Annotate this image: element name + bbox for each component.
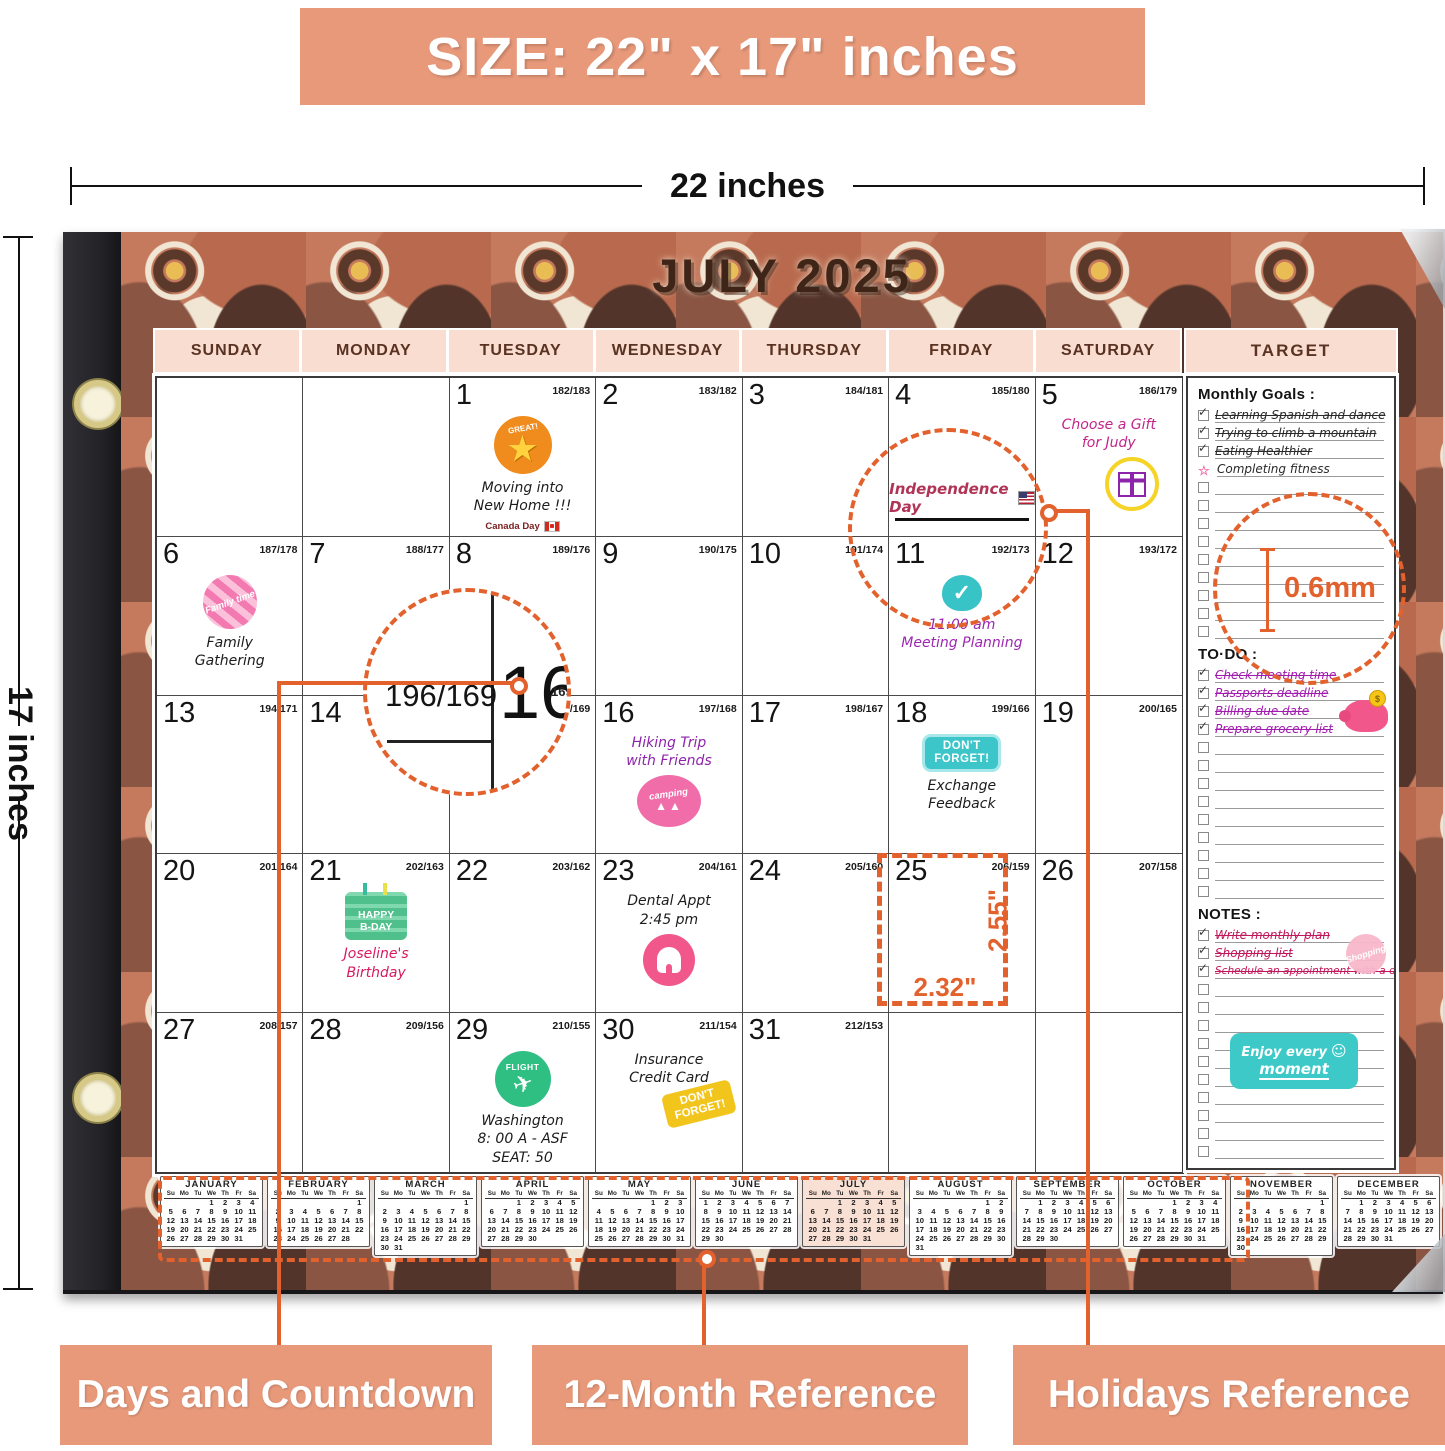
mini-day: 26 [1275, 1235, 1289, 1244]
event-line: Exchange [928, 777, 997, 795]
measure-line [853, 185, 1425, 187]
checkbox-icon [1198, 868, 1209, 879]
date-number: 16 [602, 699, 634, 728]
cell-content: DON'TFORGET!ExchangeFeedback [889, 730, 1034, 854]
birthday-cake-sticker-icon: HAPPYB-DAY [345, 892, 407, 940]
event-line: Credit Card [629, 1069, 709, 1087]
mini-day [1275, 1244, 1289, 1253]
day-header-label: TUESDAY [480, 342, 562, 360]
day-header: MONDAY [302, 330, 446, 372]
sticker-label: HAPPY [358, 909, 394, 922]
mini-day [1302, 1244, 1316, 1253]
calendar-day-cell: 28209/156 [303, 1013, 449, 1172]
great-star-sticker-icon: GREAT!★ [494, 416, 552, 474]
mini-day [1422, 1235, 1436, 1244]
connector-ring [698, 1250, 716, 1268]
mini-day: 27 [1288, 1235, 1302, 1244]
ruled-line: Trying to climb a mountain [1215, 422, 1384, 441]
day-countdown: 199/166 [992, 703, 1030, 715]
ruled-line [1215, 880, 1384, 899]
day-header: WEDNESDAY [596, 330, 740, 372]
day-countdown: 186/179 [1139, 385, 1177, 397]
date-number: 26 [1042, 857, 1074, 886]
ruled-line: Eating Healthier [1215, 440, 1384, 459]
date-number: 18 [895, 699, 927, 728]
target-header: TARGET [1186, 330, 1396, 372]
magnified-gridline [387, 740, 493, 743]
event-text: Hiking Tripwith Friends [626, 734, 712, 770]
calendar-day-cell: 29210/155FLIGHT✈Washington8: 00 A - ASFS… [450, 1013, 596, 1172]
mini-day [1261, 1244, 1275, 1253]
mini-day-header: Mo [1355, 1190, 1369, 1197]
checklist-item: Passports deadline [1198, 683, 1384, 701]
checkbox-icon [1198, 1092, 1209, 1103]
empty-checklist-row [1198, 477, 1384, 495]
cell-content [303, 1047, 448, 1172]
date-number: 2 [602, 381, 618, 410]
flight-sticker-icon: FLIGHT✈ [495, 1051, 551, 1107]
width-measurement: 22 inches [70, 168, 1425, 204]
date-number: 8 [456, 540, 472, 569]
ruled-line [1215, 790, 1384, 809]
cell-content: HAPPYB-DAYJoseline'sBirthday [303, 888, 448, 1012]
day-countdown: 197/168 [699, 703, 737, 715]
event-text: Joseline'sBirthday [344, 945, 409, 981]
cell-content [889, 1047, 1034, 1172]
checkbox-icon [1198, 886, 1209, 897]
empty-checklist-row [1198, 845, 1384, 863]
checked-checkbox-icon [1198, 688, 1209, 699]
cell-content [1036, 730, 1182, 854]
empty-checklist-row [1198, 737, 1384, 755]
countdown-magnifier-circle: 196/169 16 169 [363, 588, 571, 796]
product-image-calendar: SIZE: 22" x 17" inches 22 inches 17 inch… [0, 0, 1445, 1451]
cell-content: GREAT!★Moving intoNew Home !!! [450, 412, 595, 536]
day-countdown: 204/161 [699, 861, 737, 873]
checkbox-icon [1198, 742, 1209, 753]
measure-tick [1423, 167, 1425, 205]
month-title: JULY 2025 [121, 248, 1443, 303]
event-line: Washington [477, 1112, 567, 1130]
checkbox-icon [1198, 1146, 1209, 1157]
sticker-label: B-DAY [360, 921, 392, 934]
empty-checklist-row [1198, 827, 1384, 845]
event-line: for Judy [1062, 434, 1156, 452]
cell-content [1036, 888, 1182, 1012]
cell-content [1036, 571, 1182, 695]
date-number: 24 [749, 857, 781, 886]
cell-content [743, 1047, 888, 1172]
calendar-day-cell: 12193/172 [1036, 537, 1182, 696]
checklist-item: Trying to climb a mountain [1198, 423, 1384, 441]
checklist-item-text: Write monthly plan [1215, 929, 1330, 942]
connector-ring [510, 677, 528, 695]
event-text: Washington8: 00 A - ASFSEAT: 50 [477, 1112, 567, 1167]
paper-thickness-label: 0.6mm [1284, 572, 1376, 605]
ruled-line: Completing fitness [1217, 458, 1384, 477]
day-header-label: MONDAY [336, 342, 412, 360]
day-header-label: SATURDAY [1061, 342, 1155, 360]
checked-checkbox-icon [1198, 428, 1209, 439]
day-countdown: 183/182 [699, 385, 737, 397]
checklist-item-text: Trying to climb a mountain [1215, 427, 1376, 440]
measure-line [18, 236, 20, 726]
event-line: Birthday [344, 964, 409, 982]
mini-day-header: We [1382, 1190, 1396, 1197]
measure-line [70, 185, 642, 187]
size-banner-text: SIZE: 22" x 17" inches [426, 26, 1018, 88]
measure-line [18, 801, 20, 1291]
calendar-day-cell: 27208/157 [157, 1013, 303, 1172]
event-line: Moving into [474, 479, 572, 497]
checklist-item-text: Prepare grocery list [1215, 723, 1333, 736]
camping-sticker-icon: camping▲▲ [637, 775, 701, 827]
checkbox-icon [1198, 1056, 1209, 1067]
mini-day-header: Sa [1422, 1190, 1436, 1197]
cell-content: Family timeFamilyGathering [157, 571, 302, 695]
mini-day: 29 [1355, 1235, 1369, 1244]
cell-content [157, 412, 302, 536]
day-header: THURSDAY [742, 330, 886, 372]
tooth-icon [657, 947, 681, 973]
ruled-line [1215, 772, 1384, 791]
calendar-pad: JULY 2025 SUNDAYMONDAYTUESDAYWEDNESDAYTH… [63, 232, 1443, 1294]
calendar-day-cell: 31212/153 [743, 1013, 889, 1172]
ruled-line: Learning Spanish and dance [1215, 404, 1385, 423]
checked-checkbox-icon [1198, 446, 1209, 457]
coin-icon: $ [1369, 690, 1386, 707]
family-time-sticker-icon: Family time [200, 572, 259, 631]
notes-heading: NOTES : [1198, 906, 1384, 923]
cell-content [596, 571, 741, 695]
empty-checklist-row [1198, 1105, 1384, 1123]
date-number: 17 [749, 699, 781, 728]
callout-12-month-reference: 12-Month Reference [532, 1345, 968, 1445]
empty-checklist-row [1198, 863, 1384, 881]
date-number: 10 [749, 540, 781, 569]
day-header: FRIDAY [889, 330, 1033, 372]
date-number: 20 [163, 857, 195, 886]
day-countdown: 210/155 [552, 1020, 590, 1032]
empty-checklist-row [1198, 979, 1384, 997]
checkbox-icon [1198, 500, 1209, 511]
empty-checklist-row [1198, 791, 1384, 809]
day-header: TUESDAY [449, 330, 593, 372]
ruled-line [1215, 996, 1384, 1015]
mini-day-header: Tu [1368, 1190, 1382, 1197]
date-number: 29 [456, 1016, 488, 1045]
calendar-day-cell: 1182/183GREAT!★Moving intoNew Home !!!Ca… [450, 378, 596, 537]
star-icon: ☆ [1198, 466, 1211, 476]
smiley-icon: ☺ [1331, 1042, 1347, 1060]
checked-checkbox-icon [1198, 670, 1209, 681]
day-header-label: SUNDAY [191, 342, 263, 360]
checkbox-icon [1198, 796, 1209, 807]
event-line: New Home !!! [474, 497, 572, 515]
calendar-day-cell [303, 378, 449, 537]
day-countdown: 193/172 [1139, 544, 1177, 556]
day-of-week-header-row: SUNDAYMONDAYTUESDAYWEDNESDAYTHURSDAYFRID… [155, 330, 1180, 372]
event-line: 8: 00 A - ASF [477, 1130, 567, 1148]
event-text: Moving intoNew Home !!! [474, 479, 572, 515]
checkbox-icon [1198, 984, 1209, 995]
checkbox-icon [1198, 482, 1209, 493]
event-line: Gathering [195, 652, 265, 670]
mini-day: 28 [1341, 1235, 1355, 1244]
connector-line [281, 681, 514, 685]
calendar-day-cell [889, 1013, 1035, 1172]
cell-content: Dental Appt2:45 pm [596, 888, 741, 1012]
mini-day: 25 [1395, 1226, 1409, 1235]
candle-icon [383, 883, 387, 895]
date-number: 30 [602, 1016, 634, 1045]
checkbox-icon [1198, 832, 1209, 843]
event-line: Family [195, 634, 265, 652]
date-number: 9 [602, 540, 618, 569]
ruled-line [1215, 1122, 1384, 1141]
monthly-goals-heading: Monthly Goals : [1198, 386, 1384, 403]
ruled-line [1215, 736, 1384, 755]
cell-height-label: 2.55" [983, 871, 1014, 971]
mini-day: 27 [1422, 1226, 1436, 1235]
date-number: 13 [163, 699, 195, 728]
piggy-bank-sticker: $ [1344, 700, 1388, 732]
calendar-day-cell: 30211/154InsuranceCredit CardDON'TFORGET… [596, 1013, 742, 1172]
mini-day-header: Su [1341, 1190, 1355, 1197]
checkbox-icon [1198, 1110, 1209, 1121]
mini-day [1409, 1235, 1423, 1244]
ruled-line: Passports deadline [1215, 682, 1384, 701]
cell-content: FLIGHT✈Washington8: 00 A - ASFSEAT: 50 [450, 1047, 595, 1172]
calendar-day-cell: 24205/160 [743, 854, 889, 1013]
mini-day-header: Fr [1302, 1190, 1316, 1197]
cell-content [450, 888, 595, 1012]
date-number: 19 [1042, 699, 1074, 728]
checkbox-icon [1198, 1020, 1209, 1031]
event-text: Choose a Giftfor Judy [1062, 416, 1156, 452]
ruled-line [1215, 1014, 1384, 1033]
day-countdown: 207/158 [1139, 861, 1177, 873]
measure-tick [3, 1288, 33, 1290]
ruled-line [1215, 1104, 1384, 1123]
empty-checklist-row [1198, 1087, 1384, 1105]
checked-checkbox-icon [1198, 966, 1209, 977]
thickness-measure-icon [1266, 548, 1269, 632]
calendar-day-cell: 21202/163HAPPYB-DAYJoseline'sBirthday [303, 854, 449, 1013]
ruled-line [1215, 808, 1384, 827]
star-icon: ★ [506, 431, 538, 467]
empty-checklist-row [1198, 881, 1384, 899]
checklist-item-text: Billing due date [1215, 705, 1309, 718]
empty-checklist-row [1198, 1015, 1384, 1033]
empty-checklist-row [1198, 773, 1384, 791]
sticker-label: Family time [203, 588, 256, 616]
day-countdown: 203/162 [552, 861, 590, 873]
calendar-day-cell: 2183/182 [596, 378, 742, 537]
event-line: Joseline's [344, 945, 409, 963]
event-line: SEAT: 50 [477, 1149, 567, 1167]
date-number: 3 [749, 381, 765, 410]
day-countdown: 182/183 [552, 385, 590, 397]
day-countdown: 190/175 [699, 544, 737, 556]
airplane-icon: ✈ [509, 1070, 536, 1099]
calendar-day-cell: 26207/158 [1036, 854, 1182, 1013]
day-header: SATURDAY [1036, 330, 1180, 372]
connector-line-reference [702, 1258, 706, 1348]
date-number: 23 [602, 857, 634, 886]
calendar-day-cell [1036, 1013, 1182, 1172]
ruled-line [1215, 844, 1384, 863]
day-countdown: 202/163 [406, 861, 444, 873]
grommet-icon [74, 1074, 122, 1122]
mini-day: 25 [1261, 1235, 1275, 1244]
callout-days-and-countdown: Days and Countdown [60, 1345, 492, 1445]
magnified-fragment: 169 [551, 684, 571, 699]
calendar-day-cell: 17198/167 [743, 696, 889, 855]
ruled-line [1215, 826, 1384, 845]
day-header: SUNDAY [155, 330, 299, 372]
calendar-day-cell: 6187/178Family timeFamilyGathering [157, 537, 303, 696]
mini-day-header: Th [1395, 1190, 1409, 1197]
checkbox-icon [1198, 1128, 1209, 1139]
binding-strip [63, 232, 121, 1290]
mini-day-header: Sa [1315, 1190, 1329, 1197]
date-number: 7 [309, 540, 325, 569]
event-text: ExchangeFeedback [928, 777, 997, 813]
mini-calendar-december: DECEMBERSuMoTuWeThFrSa123456789101112131… [1337, 1176, 1440, 1247]
grommet-icon [74, 380, 122, 428]
checkbox-icon [1198, 1038, 1209, 1049]
calendar-day-cell: 20201/164 [157, 854, 303, 1013]
tents-icon: ▲▲ [655, 800, 683, 812]
mini-day-header: Tu [1261, 1190, 1275, 1197]
mini-week-row: 28293031 [1341, 1235, 1436, 1244]
day-countdown: 189/176 [552, 544, 590, 556]
day-countdown: 188/177 [406, 544, 444, 556]
event-text: InsuranceCredit Card [629, 1051, 709, 1087]
holiday-footnote: Canada Day [450, 521, 595, 532]
checkbox-icon [1198, 626, 1209, 637]
date-number: 28 [309, 1016, 341, 1045]
height-label: 17 inches [0, 686, 39, 841]
calendar-day-cell [157, 378, 303, 537]
mini-day [1288, 1244, 1302, 1253]
mini-month-title: DECEMBER [1341, 1179, 1436, 1190]
empty-checklist-row [1198, 755, 1384, 773]
checkbox-icon [1198, 572, 1209, 583]
checked-checkbox-icon [1198, 410, 1209, 421]
mini-day: 26 [1409, 1226, 1423, 1235]
connector-ring [1040, 504, 1058, 522]
date-number: 27 [163, 1016, 195, 1045]
event-line: Feedback [928, 795, 997, 813]
cell-content: Choose a Giftfor Judy [1036, 412, 1182, 536]
gift-sticker-icon [1105, 457, 1159, 511]
size-banner: SIZE: 22" x 17" inches [300, 8, 1145, 105]
checkbox-icon [1198, 1074, 1209, 1085]
cell-content [743, 571, 888, 695]
cell-content [303, 412, 448, 536]
date-number: 14 [309, 699, 341, 728]
measure-tick [3, 236, 33, 238]
empty-checklist-row [1198, 997, 1384, 1015]
checkbox-icon [1198, 814, 1209, 825]
event-line: Hiking Trip [626, 734, 712, 752]
date-number: 5 [1042, 381, 1058, 410]
checklist-item-text: Eating Healthier [1215, 445, 1312, 458]
holiday-text: Canada Day [485, 521, 539, 532]
event-line: Choose a Gift [1062, 416, 1156, 434]
sticker-label: FORGET! [934, 753, 989, 766]
day-countdown: 209/156 [406, 1020, 444, 1032]
empty-checklist-row [1198, 1123, 1384, 1141]
shopping-sticker: Shopping [1346, 934, 1386, 974]
cell-content [596, 412, 741, 536]
checkbox-icon [1198, 518, 1209, 529]
checked-checkbox-icon [1198, 948, 1209, 959]
checkbox-icon [1198, 778, 1209, 789]
date-number: 4 [895, 381, 911, 410]
checkbox-icon [1198, 608, 1209, 619]
event-line: 2:45 pm [627, 911, 711, 929]
calendar-day-cell: 13194/171 [157, 696, 303, 855]
candle-icon [363, 883, 367, 895]
calendar-day-cell: 23204/161Dental Appt2:45 pm [596, 854, 742, 1013]
mini-day: 29 [1315, 1235, 1329, 1244]
connector-line [1054, 509, 1090, 513]
ruled-line [1215, 754, 1384, 773]
checklist-item-text: Shopping list [1215, 947, 1293, 960]
day-countdown: 198/167 [845, 703, 883, 715]
checklist-item-text: Completing fitness [1217, 463, 1330, 476]
mini-day-header: Th [1288, 1190, 1302, 1197]
checklist-item-text: Learning Spanish and dance [1215, 409, 1385, 422]
date-number: 21 [309, 857, 341, 886]
event-line: Meeting Planning [901, 634, 1022, 652]
cell-width-label: 2.32" [895, 972, 995, 1003]
day-countdown: 187/178 [259, 544, 297, 556]
ca-flag-icon [544, 521, 560, 532]
empty-checklist-row [1198, 1141, 1384, 1159]
calendar-day-cell: 22203/162 [450, 854, 596, 1013]
cell-content [743, 730, 888, 854]
checklist-item: Eating Healthier [1198, 441, 1384, 459]
calendar-day-cell: 16197/168Hiking Tripwith Friendscamping▲… [596, 696, 742, 855]
event-text: Dental Appt2:45 pm [627, 892, 711, 928]
checked-checkbox-icon [1198, 930, 1209, 941]
checklist-item: Learning Spanish and dance [1198, 405, 1384, 423]
date-number: 22 [456, 857, 488, 886]
tooth-sticker-icon [643, 934, 695, 986]
height-measurement: 17 inches [2, 236, 36, 1290]
mini-day-header: We [1275, 1190, 1289, 1197]
mini-day-header: Fr [1409, 1190, 1423, 1197]
ruled-line [1215, 978, 1384, 997]
day-header-label: FRIDAY [929, 342, 993, 360]
holiday-highlight-circle [848, 428, 1048, 628]
day-header-label: THURSDAY [767, 342, 862, 360]
date-number: 6 [163, 540, 179, 569]
dont-forget-teal-sticker-icon: DON'TFORGET! [922, 734, 1001, 772]
gift-icon [1118, 472, 1146, 497]
day-countdown: 212/153 [845, 1020, 883, 1032]
day-countdown: 200/165 [1139, 703, 1177, 715]
mini-day: 28 [1302, 1235, 1316, 1244]
empty-checklist-row [1198, 809, 1384, 827]
day-header-label: WEDNESDAY [612, 342, 724, 360]
measure-tick [70, 167, 72, 205]
checkbox-icon [1198, 536, 1209, 547]
